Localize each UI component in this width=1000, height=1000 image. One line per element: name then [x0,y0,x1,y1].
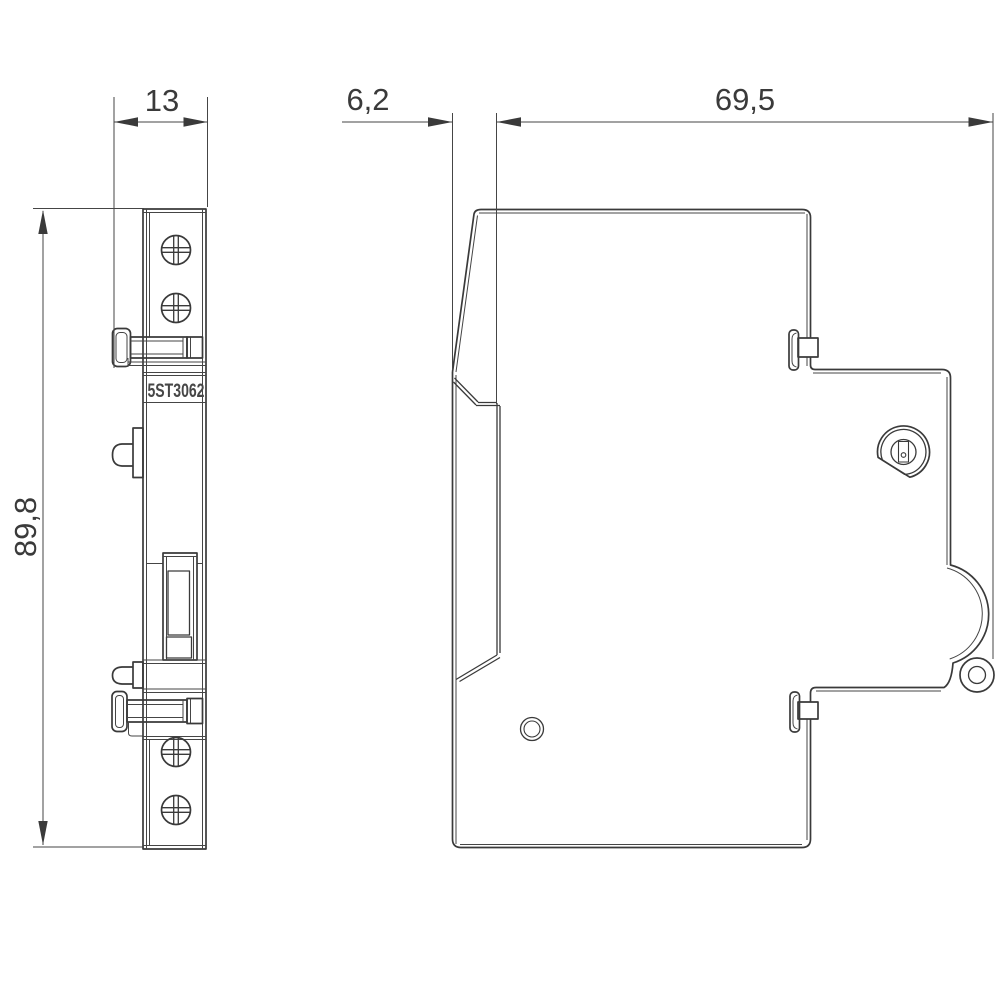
clamp-screw-upper [113,329,207,367]
side-outline-bottom [453,372,811,848]
latch-pin-upper [113,428,144,478]
dimension-height-label: 89,8 [8,497,43,557]
din-clip-upper [789,330,818,370]
dimension-height: 89,8 [8,209,144,848]
front-view: 5ST3062 [112,209,206,849]
din-clip-lower [790,692,818,732]
terminal-screw-top-1 [161,235,191,265]
dimension-depth-label: 69,5 [715,82,775,117]
product-code-label: 5ST3062 [148,381,205,402]
arrow-right-icon [184,117,208,126]
side-outline-back [811,357,989,702]
terminal-screw-top-2 [161,293,191,323]
front-recess-edge [454,378,501,682]
arrow-up-icon [38,210,47,234]
clamp-screw-lower [112,692,203,737]
arrow-right-icon [969,117,994,126]
arrow-left-icon [497,117,522,126]
dimension-drawing: 5ST3062 [0,0,1000,1000]
dimension-width-label: 13 [145,83,179,118]
front-body-outline [143,209,206,849]
terminal-screw-bottom-2 [161,795,191,825]
terminal-screw-bottom-1 [161,737,191,767]
toggle-switch [147,553,203,660]
latch-pin-lower [113,662,144,688]
arrow-left-icon [114,117,138,126]
arrow-right-icon [428,117,453,126]
rear-rivet [960,658,994,692]
front-hole [521,718,544,741]
side-outline-top [453,210,811,373]
technical-drawing-canvas: 5ST3062 [0,0,1000,1000]
dimension-depth: 69,5 [497,82,994,659]
side-view [453,210,995,848]
arrow-down-icon [38,821,47,845]
dimension-front-offset-label: 6,2 [346,82,389,117]
key-lock [878,426,930,477]
dimension-width: 13 [114,83,208,368]
